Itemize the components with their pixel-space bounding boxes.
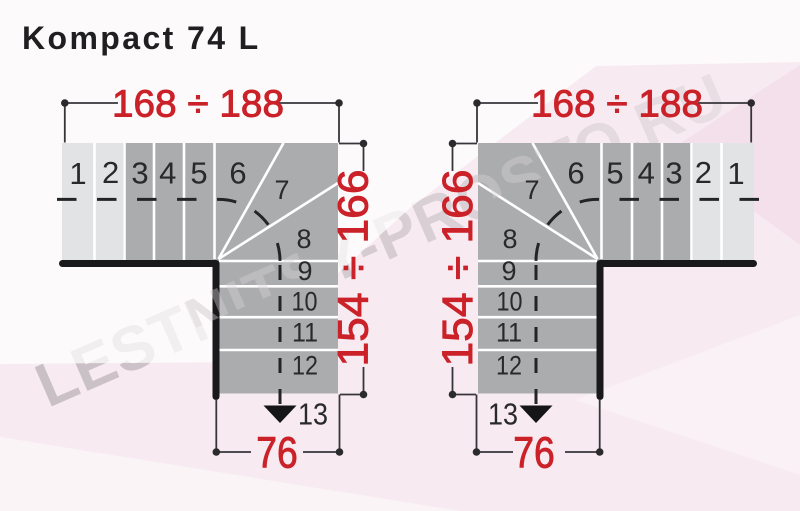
svg-text:1: 1: [69, 156, 86, 191]
svg-text:76: 76: [256, 430, 298, 478]
svg-text:154 ÷ 166: 154 ÷ 166: [434, 170, 482, 367]
svg-text:7: 7: [274, 175, 289, 205]
svg-text:4: 4: [159, 155, 176, 190]
svg-text:8: 8: [296, 224, 311, 254]
svg-text:6: 6: [567, 155, 584, 190]
svg-text:2: 2: [102, 155, 119, 190]
svg-text:13: 13: [488, 396, 518, 431]
svg-text:168 ÷ 188: 168 ÷ 188: [531, 84, 703, 126]
svg-text:4: 4: [638, 155, 655, 190]
svg-text:6: 6: [229, 155, 246, 190]
svg-text:7: 7: [524, 175, 539, 205]
svg-text:76: 76: [513, 430, 555, 478]
svg-text:11: 11: [496, 317, 522, 347]
svg-text:2: 2: [695, 155, 712, 190]
svg-text:154 ÷ 166: 154 ÷ 166: [330, 170, 378, 367]
svg-text:3: 3: [131, 155, 148, 190]
svg-text:12: 12: [292, 350, 318, 380]
svg-text:1: 1: [727, 156, 744, 191]
svg-text:5: 5: [190, 155, 207, 190]
svg-text:11: 11: [292, 317, 318, 347]
svg-text:3: 3: [665, 155, 682, 190]
svg-text:10: 10: [497, 286, 523, 316]
svg-text:9: 9: [297, 256, 312, 286]
svg-text:12: 12: [496, 350, 522, 380]
svg-text:168 ÷ 188: 168 ÷ 188: [112, 84, 284, 126]
svg-text:Kompact 74 L: Kompact 74 L: [22, 20, 261, 56]
svg-text:5: 5: [606, 155, 623, 190]
svg-text:9: 9: [501, 256, 516, 286]
svg-text:10: 10: [292, 286, 318, 316]
svg-text:13: 13: [298, 396, 328, 431]
svg-text:8: 8: [502, 224, 517, 254]
